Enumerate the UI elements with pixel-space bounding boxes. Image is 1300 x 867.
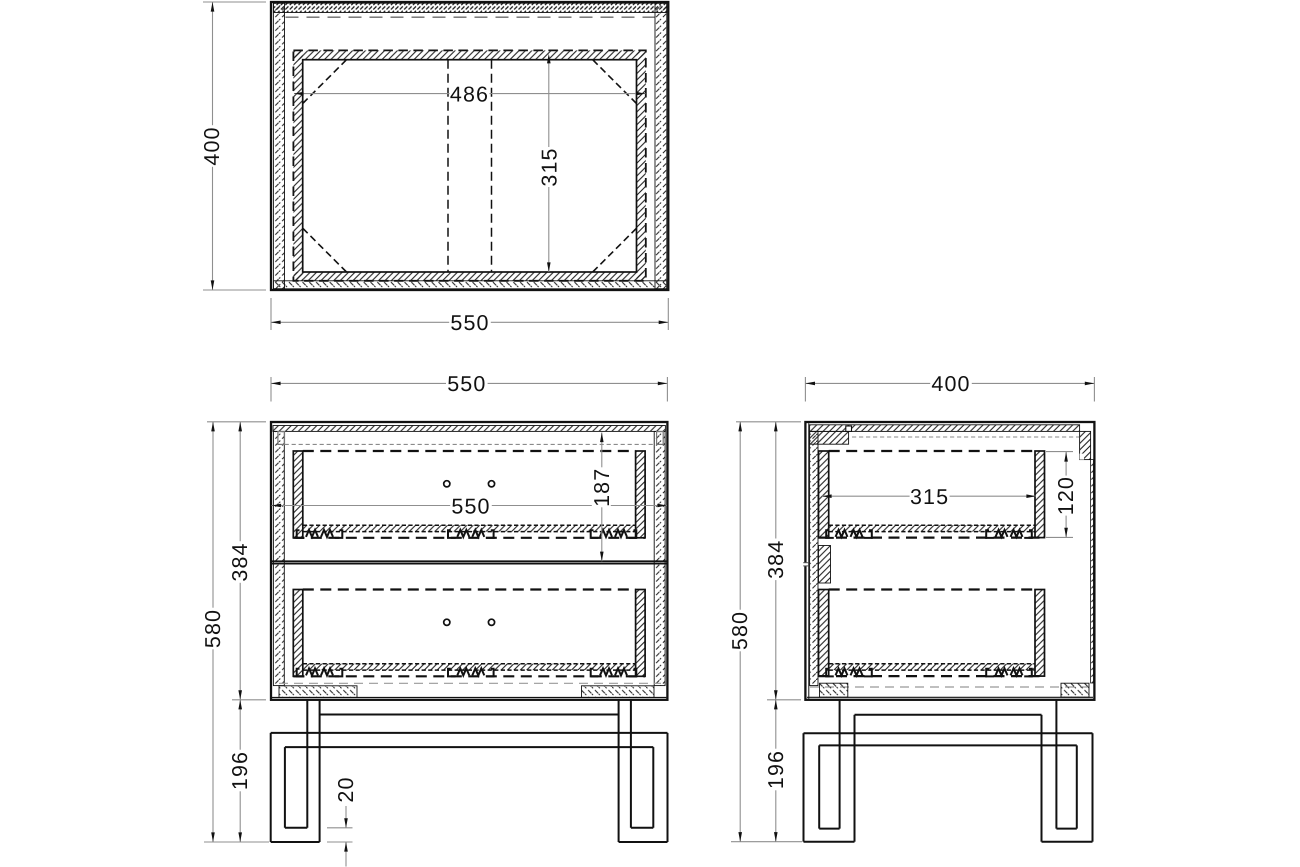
svg-text:315: 315 <box>910 485 949 509</box>
svg-text:187: 187 <box>590 468 614 507</box>
svg-text:550: 550 <box>447 372 486 396</box>
svg-text:400: 400 <box>200 126 224 165</box>
svg-text:315: 315 <box>538 147 562 186</box>
svg-text:550: 550 <box>450 311 489 335</box>
svg-text:550: 550 <box>451 494 490 518</box>
svg-text:196: 196 <box>228 751 252 790</box>
svg-text:580: 580 <box>201 609 225 648</box>
svg-text:486: 486 <box>450 82 489 106</box>
svg-text:384: 384 <box>764 540 788 579</box>
svg-text:196: 196 <box>764 750 788 789</box>
svg-text:400: 400 <box>931 372 970 396</box>
svg-text:580: 580 <box>728 611 752 650</box>
svg-text:384: 384 <box>228 542 252 581</box>
svg-text:20: 20 <box>334 776 358 802</box>
svg-text:120: 120 <box>1054 476 1078 515</box>
